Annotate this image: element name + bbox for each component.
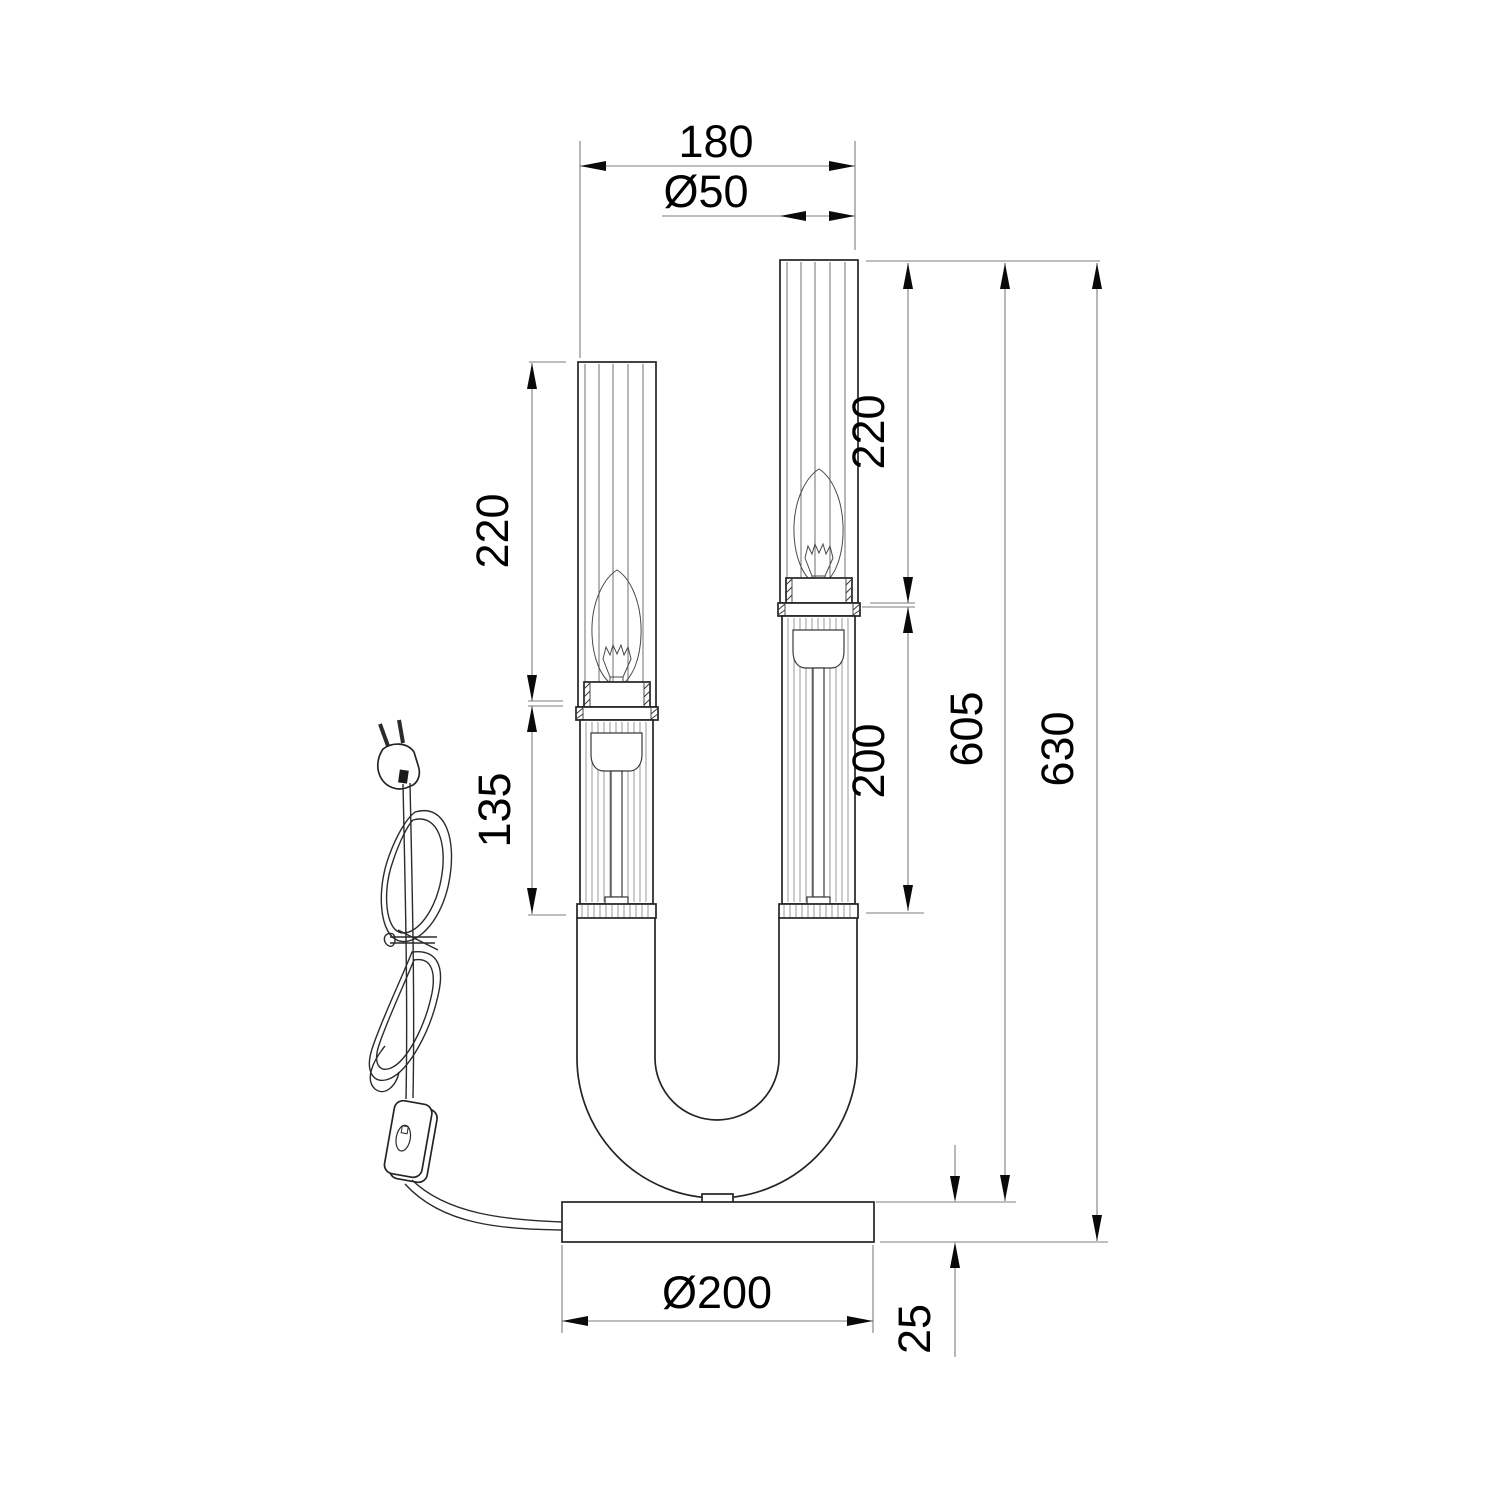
- plug: [378, 720, 420, 789]
- power-cord: [369, 720, 563, 1230]
- base: [562, 1194, 874, 1242]
- dim-base-diameter: Ø200: [562, 1245, 873, 1333]
- base-plate: [562, 1202, 874, 1242]
- lamp-figure: [369, 260, 874, 1242]
- dim-label-right-column-height: 200: [843, 723, 894, 798]
- dim-left-column-height: 135: [469, 706, 566, 915]
- dim-label-overall-width: 180: [678, 116, 753, 167]
- dim-overall-height: 630: [880, 263, 1108, 1242]
- dim-label-shade-diameter: Ø50: [663, 166, 748, 217]
- cord-coil: [369, 783, 451, 1099]
- dim-label-base-diameter: Ø200: [662, 1267, 772, 1318]
- left-column: [577, 720, 656, 918]
- u-shaped-body: [577, 918, 857, 1198]
- cord-entry: [398, 770, 409, 784]
- left-socket-assembly: [576, 682, 658, 720]
- left-glass-shade: [578, 362, 656, 707]
- right-socket-assembly: [778, 578, 860, 616]
- dim-base-thickness: 25: [889, 1145, 960, 1357]
- dim-label-left-shade-height: 220: [467, 493, 518, 568]
- technical-drawing-canvas: 180 Ø50 220 135 2: [0, 0, 1500, 1500]
- dim-label-left-column-height: 135: [469, 772, 520, 847]
- dim-height-to-base-top: 605: [876, 263, 1016, 1202]
- lamp-dimension-drawing: 180 Ø50 220 135 2: [0, 0, 1500, 1500]
- dim-label-base-thickness: 25: [889, 1304, 940, 1354]
- plug-prong: [399, 720, 403, 743]
- dim-label-height-to-base-top: 605: [941, 691, 992, 766]
- dim-shade-diameter: Ø50: [662, 166, 855, 221]
- dim-label-overall-height: 630: [1032, 711, 1083, 786]
- inline-switch: [382, 1099, 439, 1183]
- plug-prong: [380, 724, 388, 746]
- dim-left-shade-height: 220: [467, 362, 566, 706]
- dim-label-right-shade-height: 220: [843, 394, 894, 469]
